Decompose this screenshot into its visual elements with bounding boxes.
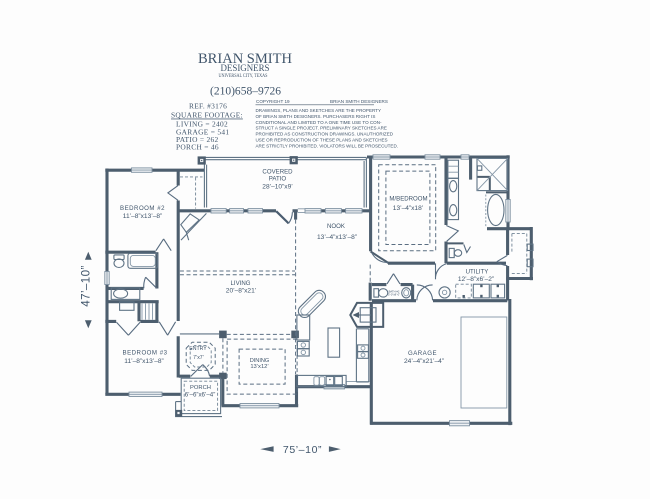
svg-text:PORCH: PORCH [190,385,211,391]
svg-text:USE OR REPRODUCTION OF THESE P: USE OR REPRODUCTION OF THESE PLANS AND S… [256,138,388,143]
svg-text:PROHIBITED AS CONSTRUCTION DRA: PROHIBITED AS CONSTRUCTION DRAWINGS. UNA… [256,132,394,137]
svg-text:COVERED: COVERED [262,169,293,176]
svg-text:DRAWINGS, PLANS AND SKETCHES A: DRAWINGS, PLANS AND SKETCHES ARE THE PRO… [256,108,382,113]
svg-text:GARAGE: GARAGE [408,350,437,357]
svg-text:(210)658–9726: (210)658–9726 [210,85,281,98]
svg-text:13’x12’: 13’x12’ [250,364,268,370]
svg-text:DESIGNERS: DESIGNERS [221,63,270,74]
svg-text:BEDROOM #3: BEDROOM #3 [123,350,168,357]
svg-text:BEDROOM #2: BEDROOM #2 [120,205,165,212]
svg-text:PORCH = 46: PORCH = 46 [176,143,219,152]
svg-text:NOOK: NOOK [327,223,345,230]
svg-text:SQUARE FOOTAGE:: SQUARE FOOTAGE: [171,111,243,120]
svg-text:UNIVERSAL CITY, TEXAS: UNIVERSAL CITY, TEXAS [219,74,268,79]
svg-text:5’-0”x8’-0”: 5’-0”x8’-0” [388,293,400,297]
svg-text:PATIO: PATIO [269,176,287,183]
svg-text:UTILITY: UTILITY [466,269,489,276]
svg-text:47’–10”: 47’–10” [80,265,93,306]
svg-text:M/BEDROOM: M/BEDROOM [389,196,427,203]
svg-text:LIVING: LIVING [231,280,251,287]
svg-text:COPYRIGHT 19: COPYRIGHT 19 [256,99,290,104]
svg-text:20’–8”x21’: 20’–8”x21’ [226,288,257,295]
svg-text:75’–10”: 75’–10” [283,444,322,456]
svg-text:STRUCT A SINGLE PROJECT. PREL: STRUCT A SINGLE PROJECT. PRELIMINARY SKE… [256,126,387,131]
svg-text:OF BRIAN SMITH DESIGNERS. PUR: OF BRIAN SMITH DESIGNERS. PURCHASERS RIG… [256,114,376,119]
svg-text:13’–4”x13’–8”: 13’–4”x13’–8” [317,234,357,241]
svg-text:12’–8”x6’–2”: 12’–8”x6’–2” [458,276,494,283]
svg-text:13’–4”x18’: 13’–4”x18’ [393,205,424,212]
svg-text:11’–8”x13’–8”: 11’–8”x13’–8” [123,213,162,220]
svg-text:24’–4”x21’–4”: 24’–4”x21’–4” [404,358,444,365]
svg-text:28’–10”x9’: 28’–10”x9’ [262,184,293,191]
svg-text:7’x7’: 7’x7’ [193,355,204,361]
svg-text:11’–8”x13’–8”: 11’–8”x13’–8” [124,358,163,365]
svg-text:CONDITIONAL AND LIMITED TO A O: CONDITIONAL AND LIMITED TO A ONE TIME US… [256,120,382,125]
svg-text:6’–6”x6’–4”: 6’–6”x6’–4” [185,391,216,398]
svg-text:ENTRY: ENTRY [189,346,207,352]
svg-text:BRIAN SMITH DESIGNERS: BRIAN SMITH DESIGNERS [330,99,388,104]
svg-text:ARE STRICTLY PROHIBITED. VIOL: ARE STRICTLY PROHIBITED. VIOLATORS WILL … [256,143,399,148]
svg-text:REF. #3176: REF. #3176 [189,102,227,111]
